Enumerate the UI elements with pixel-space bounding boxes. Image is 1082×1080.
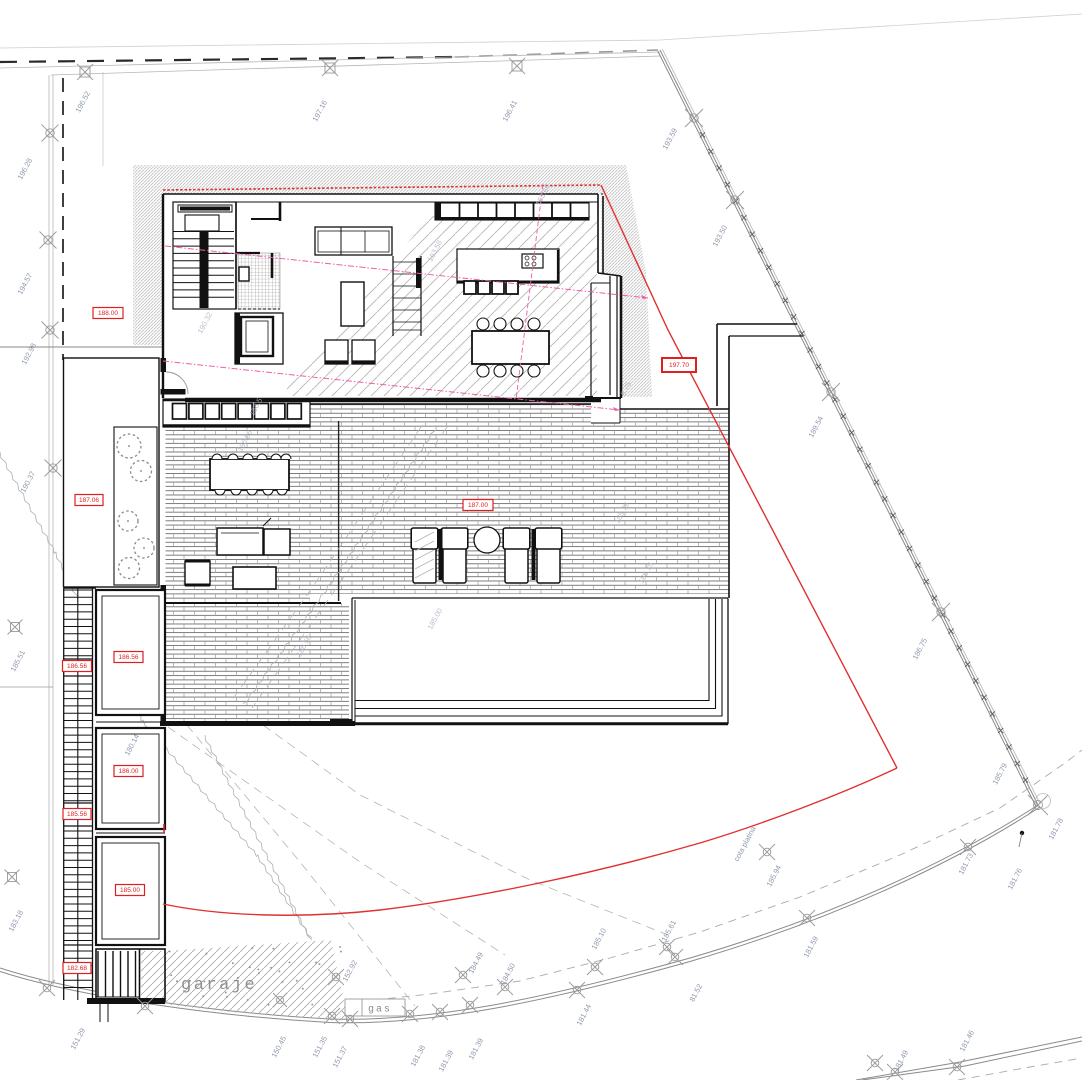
svg-text:181.39: 181.39 [466,1037,485,1061]
svg-text:181.44: 181.44 [574,1003,593,1027]
svg-text:184.49: 184.49 [466,951,485,975]
svg-text:197.16: 197.16 [310,99,329,123]
svg-text:150.45: 150.45 [269,1035,288,1059]
svg-text:152.92: 152.92 [340,959,359,983]
svg-text:182.68: 182.68 [67,965,87,972]
svg-text:gas: gas [368,1005,392,1016]
svg-text:196.41: 196.41 [500,99,519,123]
svg-text:186.00: 186.00 [119,768,139,775]
svg-text:186.75: 186.75 [910,637,929,661]
svg-text:151.35: 151.35 [310,1035,329,1059]
svg-text:181.46: 181.46 [957,1029,976,1053]
svg-text:185.51: 185.51 [8,649,27,673]
svg-text:186.56: 186.56 [119,654,139,661]
svg-text:185.79: 185.79 [990,762,1009,786]
svg-text:190.37: 190.37 [18,470,37,494]
svg-text:garaje: garaje [181,976,257,995]
svg-text:185.00: 185.00 [425,607,444,631]
svg-text:181.38: 181.38 [408,1044,427,1068]
svg-text:193.50: 193.50 [710,224,729,248]
svg-text:cota platina: cota platina [732,824,758,863]
svg-text:185.00: 185.00 [120,887,140,894]
svg-text:81.52: 81.52 [687,982,704,1003]
svg-text:185.94: 185.94 [764,864,783,888]
svg-text:196.28: 196.28 [15,157,34,181]
svg-text:181.59: 181.59 [801,935,820,959]
svg-text:193.59: 193.59 [660,127,679,151]
svg-text:151.37: 151.37 [330,1045,349,1069]
svg-text:194.57: 194.57 [15,272,34,296]
svg-text:181.78: 181.78 [1046,817,1065,841]
svg-text:181.73: 181.73 [956,852,975,876]
svg-text:183.18: 183.18 [6,909,25,933]
svg-text:187.06: 187.06 [79,497,99,504]
svg-text:196.52: 196.52 [73,90,92,114]
svg-text:181.49: 181.49 [891,1049,910,1073]
svg-text:189.54: 189.54 [806,415,825,439]
svg-text:188.00: 188.00 [98,310,118,317]
svg-text:185.10: 185.10 [589,927,608,951]
svg-text:151.29: 151.29 [68,1027,87,1051]
svg-text:184.50: 184.50 [498,962,517,986]
svg-text:187.00: 187.00 [468,502,488,509]
svg-text:181.76: 181.76 [1005,867,1024,891]
svg-text:197.70: 197.70 [669,362,689,369]
svg-text:186.56: 186.56 [67,663,87,670]
svg-text:192.98: 192.98 [19,342,38,366]
svg-text:185.56: 185.56 [67,811,87,818]
svg-text:181.39: 181.39 [436,1049,455,1073]
